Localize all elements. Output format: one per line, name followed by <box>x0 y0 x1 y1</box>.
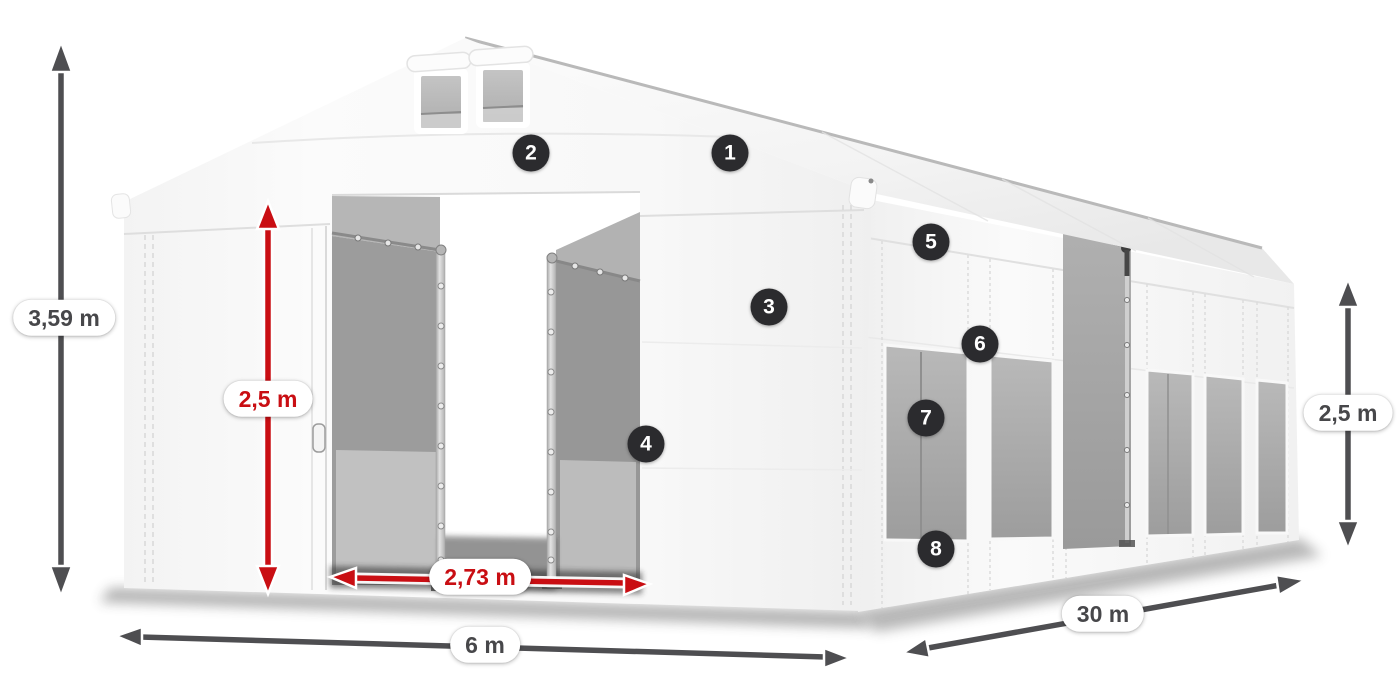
door-handle <box>313 424 325 452</box>
side-length-label: 30 m <box>1062 596 1144 632</box>
callout-2: 2 <box>513 135 550 172</box>
side-doorway-open <box>1057 215 1135 549</box>
callout-3: 3 <box>751 289 788 326</box>
tent-illustration <box>0 0 1400 700</box>
callout-5: 5 <box>913 224 950 261</box>
callout-4: 4 <box>628 426 665 463</box>
callout-8: 8 <box>918 531 955 568</box>
vent-window-right <box>469 46 534 128</box>
front-width-label: 6 m <box>450 627 520 663</box>
front-doorway-interior <box>330 192 642 594</box>
vent-window-left <box>407 52 472 134</box>
side-height-label: 2,5 m <box>1304 395 1393 431</box>
total-height-label: 3,59 m <box>13 300 115 336</box>
callout-7: 7 <box>908 400 945 437</box>
product-diagram: 3,59 m 2,5 m 2,73 m 6 m 30 m 2,5 m 1 2 3… <box>0 0 1400 700</box>
callout-1: 1 <box>712 135 749 172</box>
door-height-label: 2,5 m <box>224 381 313 417</box>
door-width-label: 2,73 m <box>429 559 531 595</box>
callout-6: 6 <box>962 326 999 363</box>
